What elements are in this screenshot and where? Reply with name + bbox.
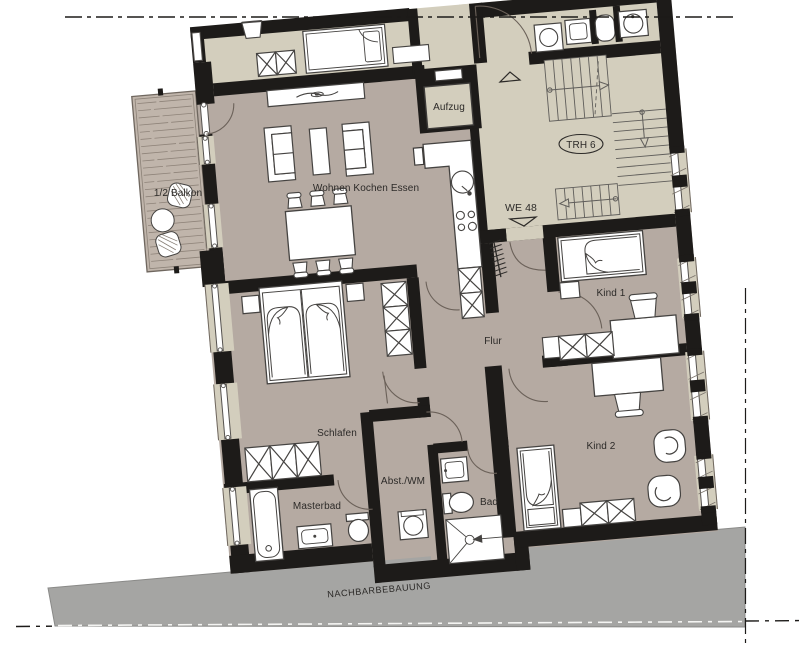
svg-text:Kind 1: Kind 1	[597, 288, 626, 299]
svg-text:Abst./WM: Abst./WM	[381, 476, 425, 487]
svg-text:Wohnen Kochen Essen: Wohnen Kochen Essen	[313, 183, 419, 194]
svg-text:TRH 6: TRH 6	[566, 140, 596, 151]
svg-text:Schlafen: Schlafen	[317, 428, 357, 439]
svg-text:Masterbad: Masterbad	[293, 501, 341, 512]
svg-text:1/2 Balkon: 1/2 Balkon	[154, 188, 202, 199]
svg-text:Flur: Flur	[484, 336, 502, 347]
svg-text:Aufzug: Aufzug	[433, 102, 465, 113]
svg-text:WE 48: WE 48	[505, 202, 537, 214]
svg-text:Kind 2: Kind 2	[587, 441, 616, 452]
svg-text:Bad: Bad	[480, 497, 498, 508]
